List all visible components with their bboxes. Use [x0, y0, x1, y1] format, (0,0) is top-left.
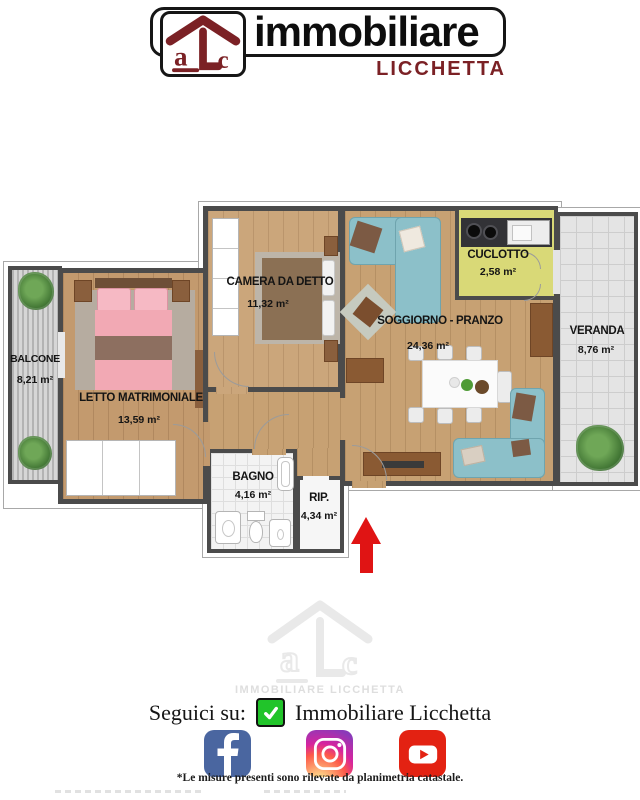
wardrobe — [66, 440, 176, 496]
footer-note: *Le misure presenti sono rilevate da pla… — [0, 772, 640, 784]
brand-name: immobiliare — [254, 8, 479, 56]
bathroom-sink — [215, 511, 241, 544]
room-area-veranda: 8,76 m² — [578, 344, 614, 356]
room-area-letto: 13,59 m² — [118, 414, 160, 426]
watermark-house-icon: a c — [262, 597, 378, 687]
nightstand — [324, 236, 338, 256]
svg-text:a: a — [280, 638, 299, 680]
svg-text:c: c — [342, 645, 357, 682]
follow-account: Immobiliare Licchetta — [295, 700, 491, 726]
room-label-soggiorno: SOGGIORNO - PRANZO — [377, 315, 503, 327]
room-label-bagno: BAGNO — [232, 471, 273, 483]
plant-icon — [18, 436, 52, 470]
nightstand — [172, 280, 190, 302]
door-opening — [352, 481, 386, 488]
door-opening — [216, 387, 248, 394]
svg-text:a: a — [174, 41, 188, 71]
kitchen-counter — [461, 218, 552, 247]
bed-headboard — [95, 278, 172, 288]
cabinet — [346, 358, 384, 383]
room-label-camera: CAMERA DA DETTO — [227, 276, 334, 288]
nightstand — [324, 340, 338, 362]
door-opening — [303, 476, 329, 482]
door-opening — [252, 449, 286, 455]
corridor-floor-2 — [297, 448, 343, 478]
room-area-bagno: 4,16 m² — [235, 489, 271, 501]
bed-blanket — [95, 310, 172, 390]
door-opening — [553, 250, 560, 294]
follow-prompt: Seguici su: — [149, 700, 246, 726]
watermark-caption: IMMOBILIARE LICCHETTA — [0, 684, 640, 696]
facebook-icon[interactable] — [204, 730, 251, 777]
room-area-soggiorno: 24,36 m² — [407, 340, 449, 352]
chair — [437, 408, 453, 424]
stove-burner — [485, 227, 496, 238]
stove-burner — [468, 225, 480, 237]
bed-throw — [95, 336, 172, 360]
scan-artifact — [55, 790, 203, 793]
plant-icon — [576, 425, 624, 471]
scan-artifact — [264, 790, 346, 793]
instagram-icon[interactable] — [306, 730, 353, 777]
door-opening — [340, 398, 347, 440]
room-label-balcone: BALCONE — [10, 353, 60, 365]
follow-row: Seguici su: Immobiliare Licchetta — [0, 698, 640, 727]
check-icon — [256, 698, 285, 727]
room-area-camera: 11,32 m² — [247, 298, 288, 310]
bidet — [269, 519, 291, 547]
toilet-bowl — [249, 521, 263, 543]
room-area-balcone: 8,21 m² — [17, 374, 53, 386]
pillow — [322, 300, 335, 336]
bathtub — [277, 457, 294, 491]
door-opening — [203, 422, 210, 466]
dining-table — [422, 360, 498, 408]
room-area-cuciotto: 2,58 m² — [480, 266, 516, 278]
chair — [466, 346, 482, 361]
chair — [466, 407, 482, 423]
room-label-cuciotto: CUCLOTTO — [467, 249, 528, 261]
youtube-icon[interactable] — [399, 730, 446, 777]
tall-cabinet — [530, 303, 553, 357]
pillow — [511, 439, 531, 457]
svg-text:c: c — [218, 47, 229, 74]
room-bagno — [207, 449, 297, 553]
room-label-rip: RIP. — [309, 492, 329, 504]
pillow — [97, 288, 131, 312]
pillow — [134, 288, 168, 312]
entrance-arrow-icon — [351, 517, 381, 573]
room-label-letto: LETTO MATRIMONIALE — [79, 392, 203, 404]
toilet — [247, 511, 265, 521]
kitchen-sink — [507, 220, 550, 245]
room-letto-matrimoniale — [58, 268, 208, 504]
brand-subname: LICCHETTA — [300, 58, 506, 81]
plant-icon — [18, 272, 54, 310]
chair — [408, 407, 424, 423]
house-logo-icon: a c — [160, 11, 246, 77]
room-area-rip: 4,34 m² — [301, 510, 337, 522]
nightstand — [74, 280, 92, 302]
room-label-veranda: VERANDA — [570, 325, 625, 337]
flyer: a c immobiliare LICCHETTA BALCONE 8,21 m… — [0, 0, 640, 800]
